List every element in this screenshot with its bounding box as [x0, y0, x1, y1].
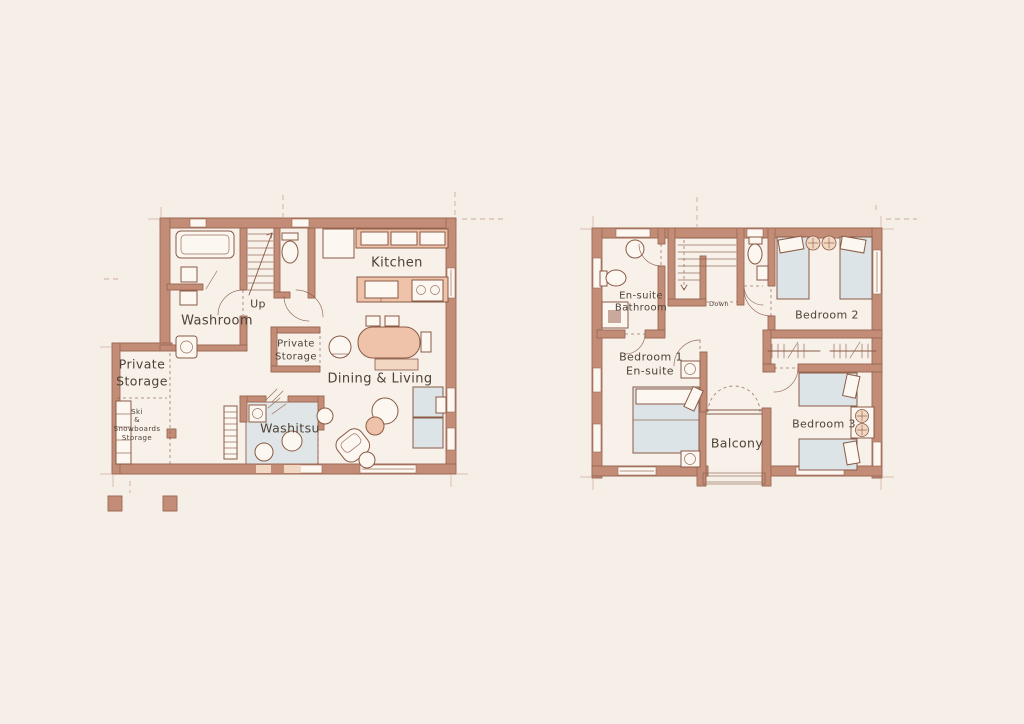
label-private-storage-2: Storage: [116, 374, 168, 389]
shelf-ladder-icon: [224, 406, 237, 459]
porch-post: [163, 496, 177, 511]
dining-chair-icon: [385, 316, 399, 326]
label-balcony: Balcony: [711, 436, 763, 451]
bathroom-sink-icon: [626, 240, 644, 258]
label-ski-storage-4: Storage: [122, 434, 152, 442]
armchair-icon: [329, 336, 351, 358]
dining-bench-icon: [375, 359, 418, 370]
wc-sink-icon: [757, 266, 768, 280]
label-ensuite-bathroom-2: Bathroom: [615, 303, 667, 314]
dining-chair-icon: [366, 316, 380, 326]
label-kitchen: Kitchen: [371, 256, 423, 271]
label-dining-living: Dining & Living: [327, 372, 432, 387]
label-washroom: Washroom: [181, 314, 253, 329]
pouf-icon: [366, 417, 384, 435]
dining-table-icon: [358, 327, 420, 358]
porch-post: [108, 496, 122, 511]
label-washitsu: Washitsu: [260, 421, 320, 436]
label-closet-storage-2: Storage: [275, 352, 317, 363]
label-closet-storage-1: Private: [277, 339, 315, 350]
side-table-icon: [359, 452, 375, 468]
label-bedroom3: Bedroom 3: [792, 418, 856, 431]
tv-unit: [413, 418, 443, 448]
dining-chair-icon: [421, 332, 431, 352]
label-ski-storage-1: Ski: [131, 408, 143, 416]
washing-machine-icon: [176, 336, 197, 358]
label-bedroom1-1: Bedroom 1: [619, 351, 683, 364]
post-marker: [167, 429, 176, 438]
washroom-sink-icon: [181, 267, 197, 282]
label-ski-storage-3: Snowboards: [114, 425, 161, 433]
label-private-storage-1: Private: [119, 357, 165, 372]
floor-plan-sheet: Kitchen Up Washroom Private Storage Dini…: [0, 0, 1024, 724]
label-bedroom2: Bedroom 2: [795, 309, 859, 322]
label-down: Down: [709, 300, 729, 308]
label-ensuite-bathroom-1: En-suite: [619, 291, 663, 302]
label-bedroom1-2: En-suite: [626, 365, 674, 378]
wc-toilet-icon: [749, 237, 762, 244]
ground-toilet-icon: [282, 233, 298, 263]
floor-cushion-icon: [255, 443, 273, 461]
washroom-cabinet-icon: [180, 291, 197, 305]
label-ski-storage-2: &: [134, 416, 140, 424]
label-up: Up: [250, 298, 266, 311]
fridge-icon: [323, 229, 354, 258]
kitchen-sink-icon: [365, 281, 398, 298]
washitsu-table-icon: [249, 405, 266, 422]
